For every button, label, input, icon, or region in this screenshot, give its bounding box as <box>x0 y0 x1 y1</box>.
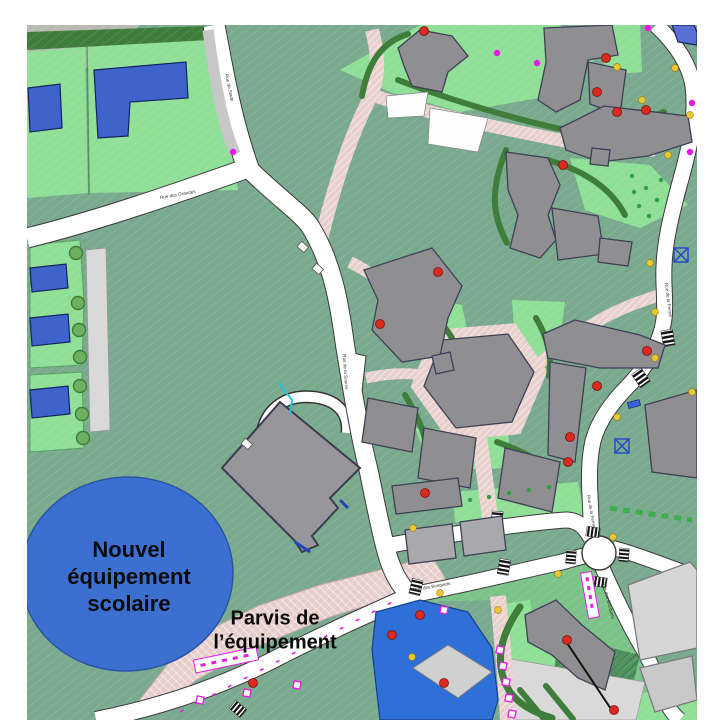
tree-icon <box>70 247 83 260</box>
magenta-square-marker <box>440 606 448 614</box>
magenta-square-marker <box>293 681 301 689</box>
magenta-marker <box>494 50 500 56</box>
yellow-marker <box>614 64 621 71</box>
yellow-marker <box>639 97 646 104</box>
yellow-marker <box>687 112 694 119</box>
small-tree-dot <box>655 198 659 202</box>
red-tree-marker <box>559 161 568 170</box>
small-tree-dot <box>468 498 472 502</box>
yellow-marker <box>555 571 562 578</box>
magenta-marker <box>534 60 540 66</box>
tree-icon <box>73 324 86 337</box>
small-tree-dot <box>630 174 634 178</box>
magenta-square-marker <box>502 678 510 686</box>
small-tree-dot <box>527 488 531 492</box>
school-annotation-label: Nouvel équipement scolaire <box>67 537 190 617</box>
red-tree-marker <box>613 108 622 117</box>
tree-icon <box>72 297 85 310</box>
red-tree-marker <box>602 54 611 63</box>
red-tree-marker <box>564 458 573 467</box>
magenta-square-marker <box>196 696 204 704</box>
parking-strip <box>86 248 110 432</box>
small-tree-dot <box>487 495 491 499</box>
yellow-marker <box>495 607 502 614</box>
red-tree-marker <box>376 320 385 329</box>
yellow-marker <box>614 414 621 421</box>
red-tree-marker <box>566 433 575 442</box>
red-tree-marker <box>440 679 449 688</box>
magenta-marker <box>230 149 236 155</box>
tree-icon <box>77 432 90 445</box>
tree-icon <box>74 380 87 393</box>
yellow-marker <box>672 65 679 72</box>
tree-icon <box>74 351 87 364</box>
magenta-square-marker <box>505 694 513 702</box>
red-tree-marker <box>416 611 425 620</box>
magenta-square-marker <box>243 689 251 697</box>
small-tree-dot <box>659 178 663 182</box>
yellow-marker <box>610 534 617 541</box>
red-tree-marker <box>593 382 602 391</box>
red-tree-marker <box>421 489 430 498</box>
magenta-square-marker <box>499 662 507 670</box>
magenta-square-marker <box>508 710 516 718</box>
red-tree-marker <box>249 679 258 688</box>
red-tree-marker <box>643 347 652 356</box>
red-tree-marker <box>420 27 429 36</box>
magenta-square-marker <box>496 646 504 654</box>
small-tree-dot <box>632 190 636 194</box>
yellow-marker <box>665 152 672 159</box>
tree-icon <box>76 408 89 421</box>
roundabout <box>582 536 616 570</box>
yellow-marker <box>689 389 696 396</box>
red-tree-marker <box>610 706 619 715</box>
magenta-marker <box>687 149 693 155</box>
parvis-annotation-label: Parvis de l’équipement <box>213 607 336 656</box>
small-tree-dot <box>547 485 551 489</box>
small-tree-dot <box>507 491 511 495</box>
yellow-marker <box>437 590 444 597</box>
red-tree-marker <box>593 88 602 97</box>
small-tree-dot <box>644 186 648 190</box>
yellow-marker <box>409 654 416 661</box>
small-tree-dot <box>647 214 651 218</box>
magenta-marker <box>645 25 651 31</box>
red-tree-marker <box>563 636 572 645</box>
red-tree-marker <box>642 106 651 115</box>
magenta-marker <box>689 100 695 106</box>
yellow-marker <box>410 525 417 532</box>
map-canvas: Rue des GrandesRue du StadeRue de la Sou… <box>0 0 720 720</box>
yellow-marker <box>652 309 659 316</box>
yellow-marker <box>647 260 654 267</box>
small-tree-dot <box>637 204 641 208</box>
red-tree-marker <box>388 631 397 640</box>
yellow-marker <box>652 355 659 362</box>
red-tree-marker <box>434 268 443 277</box>
